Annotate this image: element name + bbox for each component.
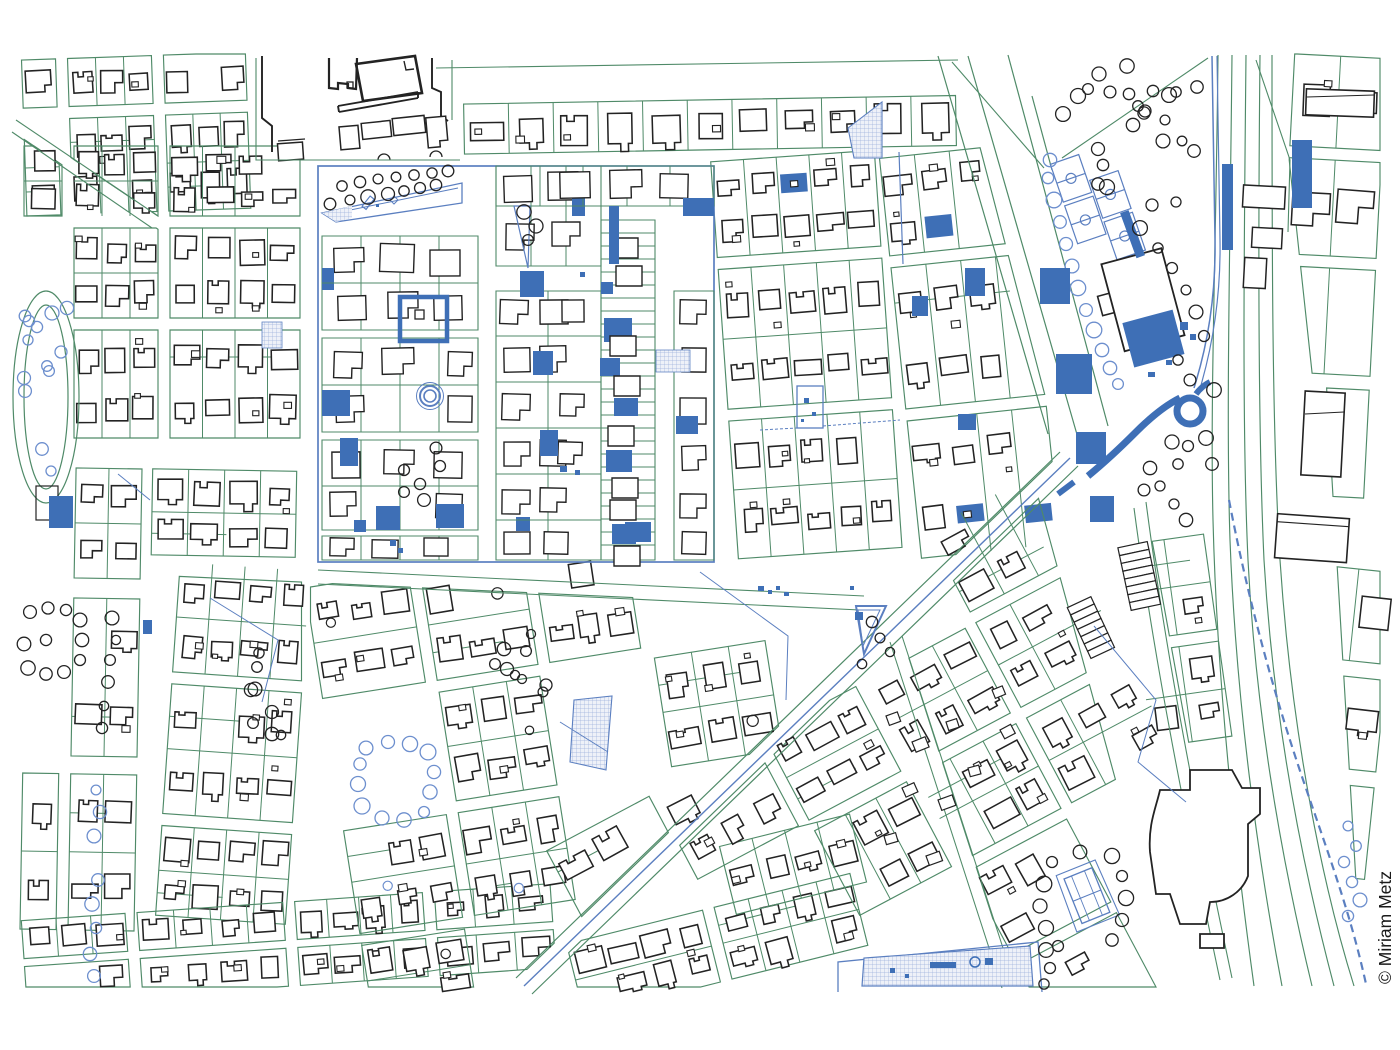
svg-text:© Miriam Metz: © Miriam Metz: [1375, 871, 1395, 984]
